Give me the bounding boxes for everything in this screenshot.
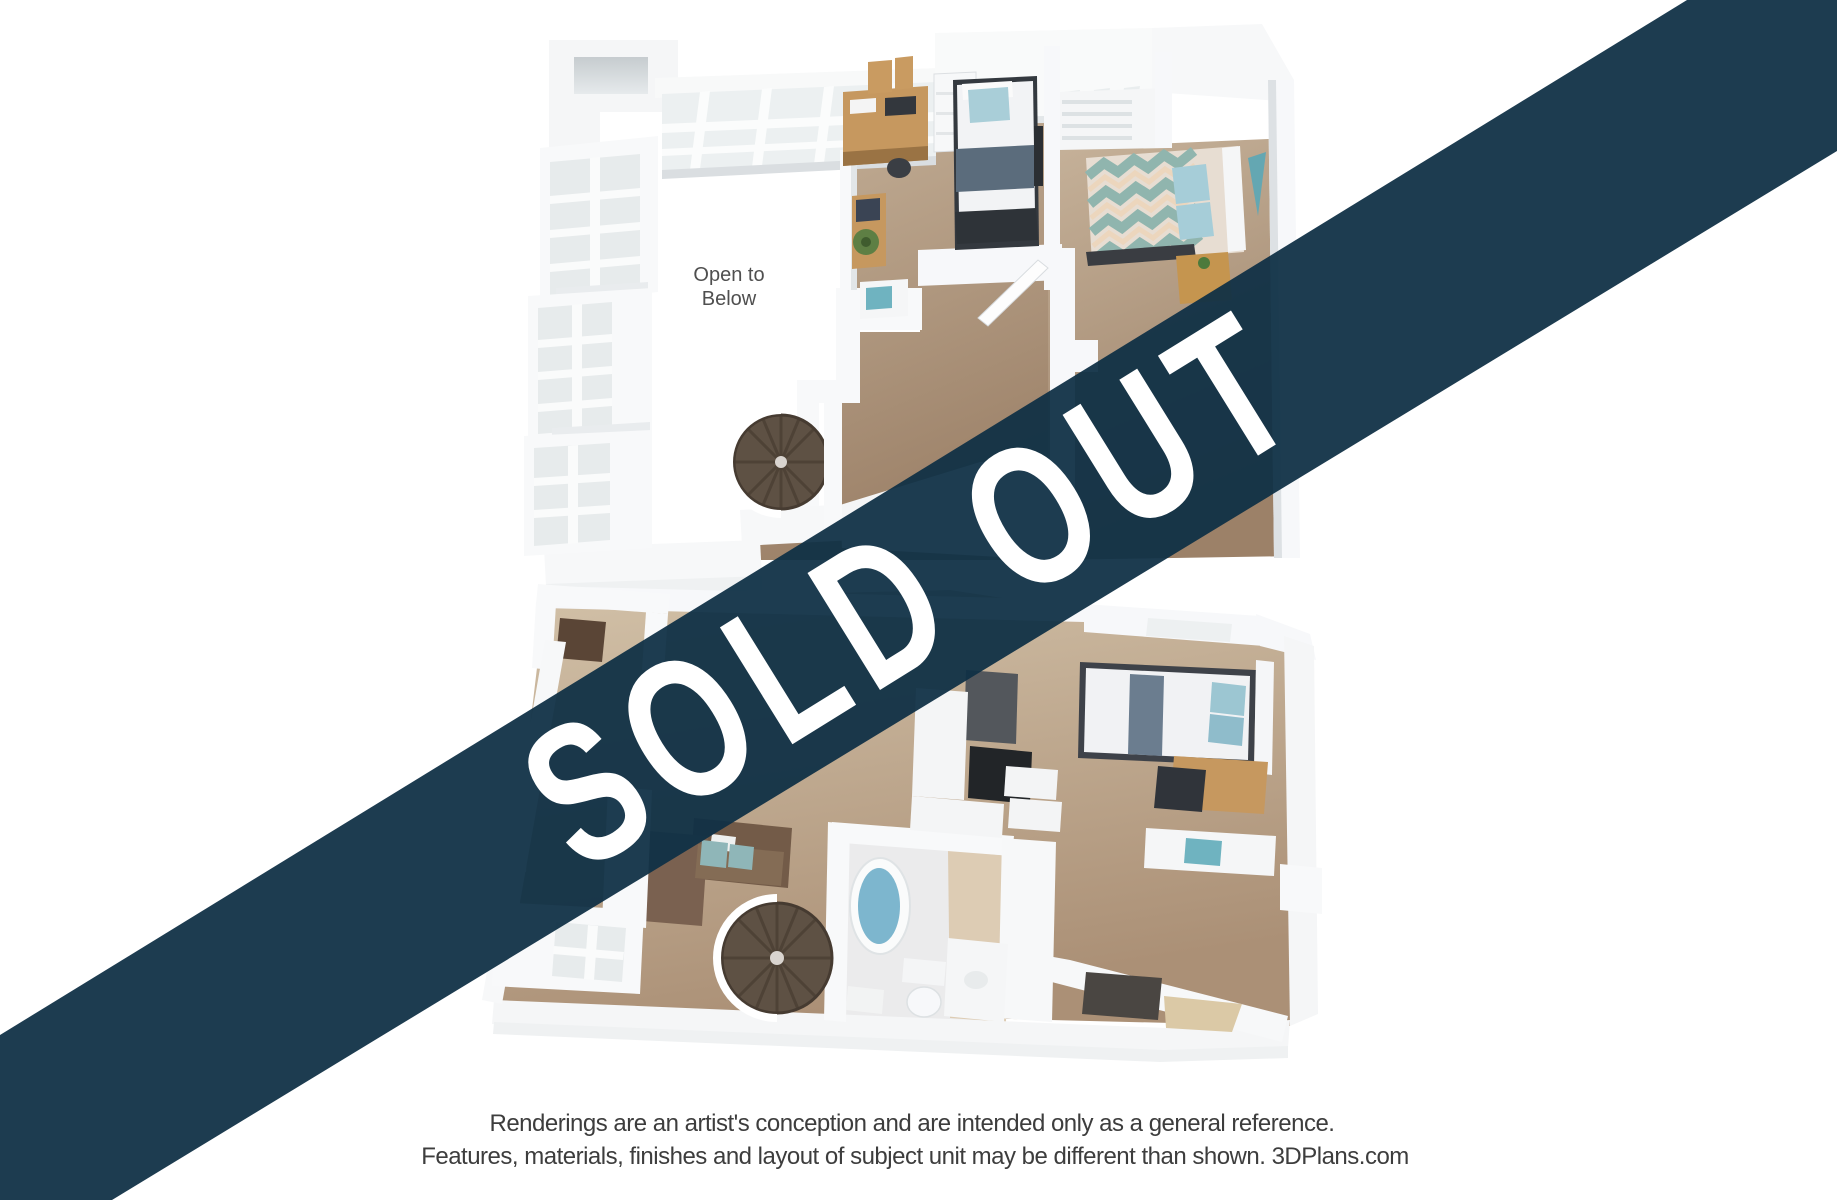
- svg-text:Renderings are an artist's con: Renderings are an artist's conception an…: [490, 1110, 1335, 1137]
- svg-text:Open to: Open to: [693, 264, 764, 286]
- svg-text:Below: Below: [702, 288, 757, 310]
- svg-text:Features, materials, finishes: Features, materials, finishes and layout…: [421, 1143, 1409, 1170]
